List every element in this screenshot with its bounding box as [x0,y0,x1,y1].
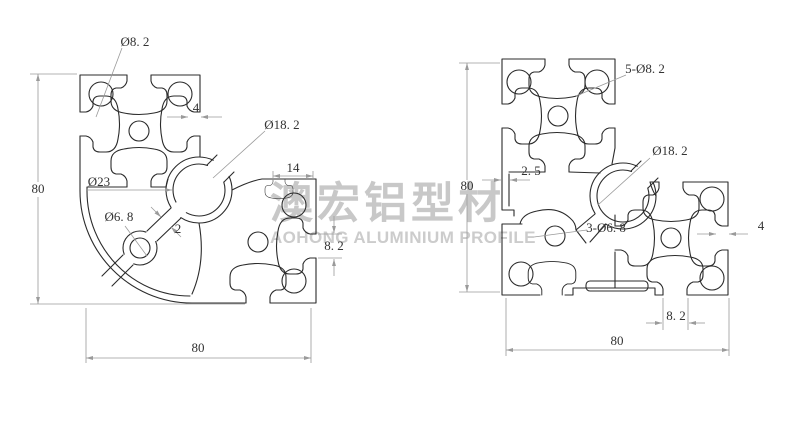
right-label-bore: Ø18. 2 [652,143,687,158]
left-hub-hole-1 [129,121,149,141]
right-label-slot-lip: 4 [758,218,765,233]
right-label-small-holes: 3-Ø6. 8 [586,220,626,235]
left-bore-outer [166,157,232,223]
right-bottom-channel [586,281,648,291]
left-label-end-face: 14 [287,160,301,175]
right-hub-hole-1 [548,106,568,126]
left-corner-hole-3 [282,193,306,217]
left-outer-arc [80,191,192,303]
left-small-hub-ring [123,231,157,265]
left-label-wall: 2 [175,221,182,236]
left-inner-arc [87,191,190,296]
left-small-hole [130,238,150,258]
left-corner-hole-2 [168,82,192,106]
left-label-corner-hole: Ø8. 2 [121,34,150,49]
left-dimension-labels: Ø8. 2 4 Ø18. 2 Ø23 Ø6. 8 2 14 8. 2 80 80 [32,34,344,355]
right-hub-hole-3 [661,228,681,248]
left-label-web-dia: Ø23 [88,174,110,189]
right-corner-hole-1 [507,70,531,94]
left-bore-inner [173,164,225,216]
drawing-canvas: 澳宏铝型材 AOHONG ALUMINIUM PROFILE [0,0,800,442]
right-hub-hole-2 [545,226,565,246]
left-label-slot-open: 8. 2 [324,238,344,253]
right-label-slot-open: 8. 2 [666,308,686,323]
left-label-height: 80 [32,181,45,196]
left-label-slot-lip: 4 [193,100,200,115]
right-label-height: 80 [461,178,474,193]
profile-drawing-svg: Ø8. 2 4 Ø18. 2 Ø23 Ø6. 8 2 14 8. 2 80 80 [0,0,800,442]
left-label-small-hole: Ø6. 8 [105,209,134,224]
right-corner-hole-4 [700,187,724,211]
right-label-corner-holes: 5-Ø8. 2 [625,61,665,76]
right-label-wall: 2. 5 [521,163,541,178]
right-label-width: 80 [611,333,624,348]
right-corner-hole-5 [700,266,724,290]
left-label-width: 80 [192,340,205,355]
left-label-bore: Ø18. 2 [264,117,299,132]
left-corner-hole-1 [89,82,113,106]
right-bore-inner [597,170,649,222]
left-dimensions [30,48,342,363]
left-hub-hole-2 [248,232,268,252]
